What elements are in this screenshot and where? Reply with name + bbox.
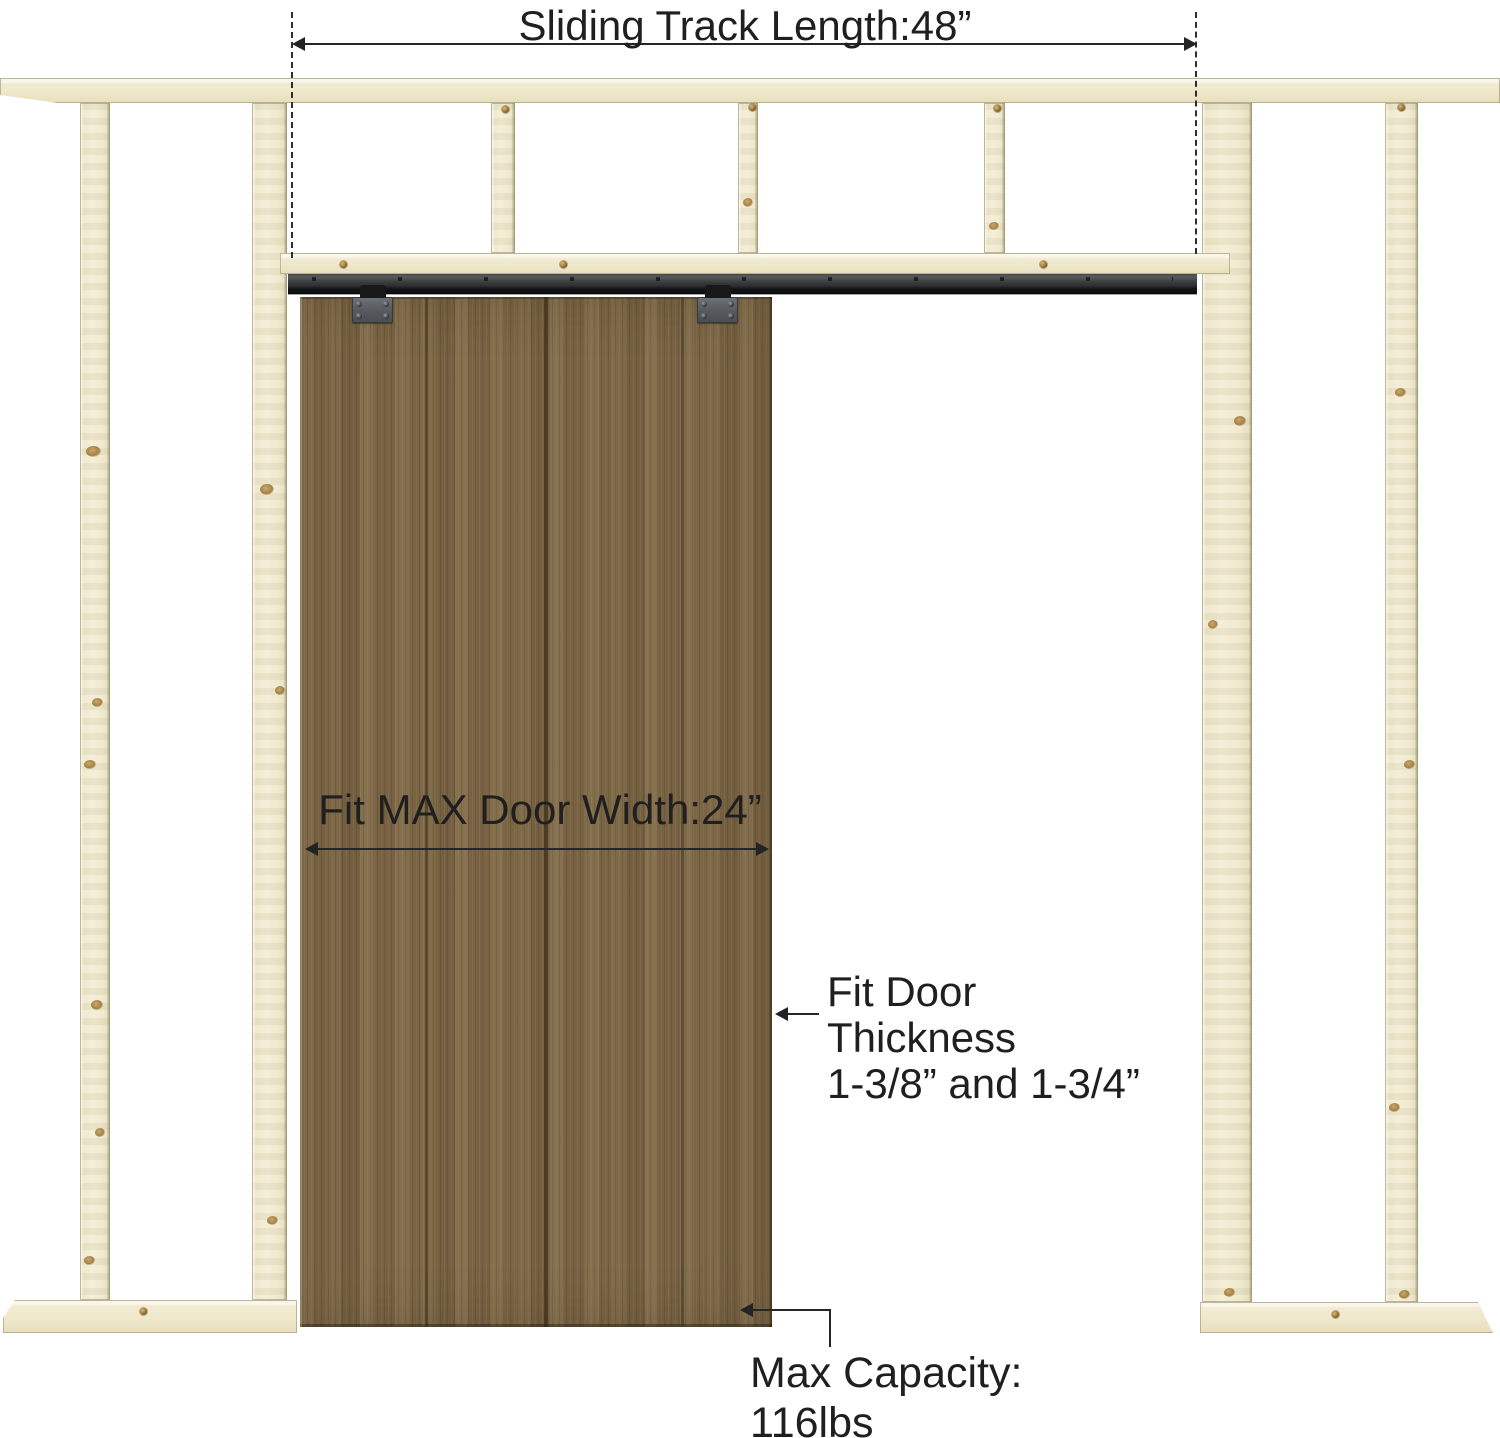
arrowhead-right	[756, 842, 769, 856]
cripple-stud	[738, 103, 758, 253]
wood-knot	[275, 686, 285, 695]
roller-wheel	[360, 285, 386, 298]
door-width-dimension-line	[314, 848, 758, 850]
arrowhead-left	[775, 1007, 788, 1021]
door-hanger-bracket	[352, 297, 393, 323]
diagram-canvas: Sliding Track Length:48” Fit MAX Door Wi…	[0, 0, 1500, 1438]
wood-knot	[1208, 620, 1218, 629]
roller-wheel	[705, 285, 731, 298]
screw	[1398, 104, 1405, 111]
capacity-leader-line	[750, 1309, 831, 1311]
screw	[994, 105, 1001, 112]
top-plate	[0, 78, 1500, 103]
door-thickness-line1: Fit Door	[827, 969, 1140, 1015]
right-inner-stud	[1202, 103, 1252, 1302]
wood-knot	[95, 1128, 105, 1137]
screw	[502, 106, 509, 113]
hanger-screw	[701, 313, 707, 319]
arrowhead-left	[305, 842, 318, 856]
thickness-leader-line	[786, 1013, 819, 1015]
hanger-screw	[728, 301, 734, 307]
left-inner-stud	[252, 103, 287, 1300]
arrowhead-left	[292, 37, 305, 51]
sliding-track	[288, 274, 1197, 294]
wood-knot	[1389, 1103, 1400, 1112]
wood-knot	[267, 1216, 278, 1225]
screw	[1040, 261, 1047, 268]
hanger-screw	[383, 313, 389, 319]
door-width-label: Fit MAX Door Width:24”	[318, 787, 761, 833]
arrowhead-left	[740, 1303, 753, 1317]
hanger-screw	[356, 301, 362, 307]
wood-knot	[1399, 1290, 1410, 1299]
wood-knot	[260, 484, 274, 495]
bottom-plate-left	[3, 1300, 297, 1333]
door-thickness-line3: 1-3/8” and 1-3/4”	[827, 1061, 1140, 1107]
cripple-stud	[984, 103, 1005, 253]
bottom-plate-right	[1200, 1302, 1493, 1333]
door-hanger-bracket	[697, 297, 738, 323]
capacity-leader-drop	[829, 1309, 831, 1347]
hanger-screw	[728, 313, 734, 319]
screw	[340, 261, 347, 268]
wood-knot	[1395, 388, 1406, 397]
header-bottom-plate	[280, 253, 1230, 274]
screw	[1332, 1311, 1339, 1318]
wood-knot	[1404, 760, 1415, 769]
track-mounting-holes	[312, 277, 1173, 281]
wood-knot	[86, 446, 101, 457]
wood-knot	[92, 698, 103, 707]
screw	[749, 104, 756, 111]
max-capacity-line2: 116lbs	[750, 1398, 1022, 1438]
wood-knot	[1234, 416, 1246, 426]
max-capacity-line1: Max Capacity:	[750, 1348, 1022, 1398]
arrowhead-right	[1184, 37, 1197, 51]
max-capacity-label: Max Capacity: 116lbs	[750, 1348, 1022, 1438]
wood-knot	[1224, 1288, 1235, 1297]
wood-knot	[84, 760, 96, 769]
door-thickness-line2: Thickness	[827, 1015, 1140, 1061]
right-outer-stud	[1385, 103, 1418, 1302]
door-thickness-label: Fit Door Thickness 1-3/8” and 1-3/4”	[827, 969, 1140, 1107]
track-length-label: Sliding Track Length:48”	[519, 3, 972, 49]
wood-knot	[989, 222, 999, 230]
cripple-stud	[491, 103, 515, 253]
screw	[560, 261, 567, 268]
hanger-screw	[356, 313, 362, 319]
hanger-screw	[701, 301, 707, 307]
screw	[140, 1308, 147, 1315]
hanger-screw	[383, 301, 389, 307]
wood-knot	[84, 1256, 95, 1265]
wood-knot	[743, 198, 753, 207]
wood-knot	[91, 1000, 103, 1010]
